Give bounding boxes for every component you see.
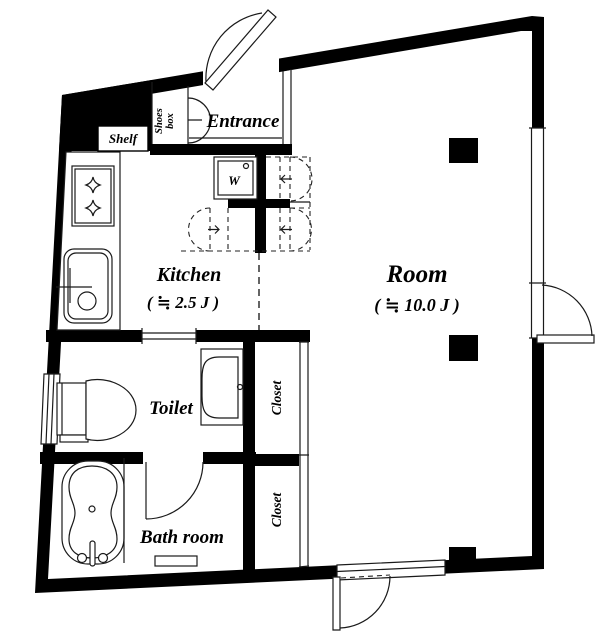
closet-upper-label: Closet <box>269 380 284 416</box>
kitchen-label: Kitchen <box>156 264 221 286</box>
room-size-label: ( ≒ 10.0 J ) <box>374 295 460 316</box>
toilet-closet-wall <box>243 342 255 570</box>
pillar-middle <box>449 335 478 361</box>
floor-plan-page: Entrance Shelf Shoesbox W Kitchen ( ≒ 2.… <box>0 0 613 640</box>
closet-lower-label: Closet <box>269 492 284 528</box>
shelf-label: Shelf <box>109 131 139 146</box>
bathroom-label: Bath room <box>139 527 224 548</box>
floor-plan: Entrance Shelf Shoesbox W Kitchen ( ≒ 2.… <box>0 0 613 640</box>
pillar-bottom <box>449 547 476 569</box>
closet-divider-wall <box>255 454 300 466</box>
kitchen-size-label: ( ≒ 2.5 J ) <box>147 293 219 312</box>
bathtub-faucet <box>90 541 95 566</box>
storage-stub-wall <box>228 199 290 208</box>
stove <box>72 166 114 226</box>
washer-label: W <box>228 173 241 188</box>
entrance-right-partition <box>283 69 291 144</box>
room-label: Room <box>385 261 447 288</box>
pillar-top <box>449 138 478 163</box>
closet-front-sliding-doors <box>299 342 309 567</box>
kitchen-sink <box>64 249 112 323</box>
entrance-bottom-wall <box>150 144 292 155</box>
bath-step <box>155 556 197 566</box>
toilet-label: Toilet <box>149 398 193 419</box>
toilet-sink-basin <box>202 357 238 418</box>
right-window <box>529 128 546 338</box>
toilet-top-window <box>142 328 196 344</box>
entrance-label: Entrance <box>206 111 280 132</box>
toilet-tank <box>57 383 86 435</box>
